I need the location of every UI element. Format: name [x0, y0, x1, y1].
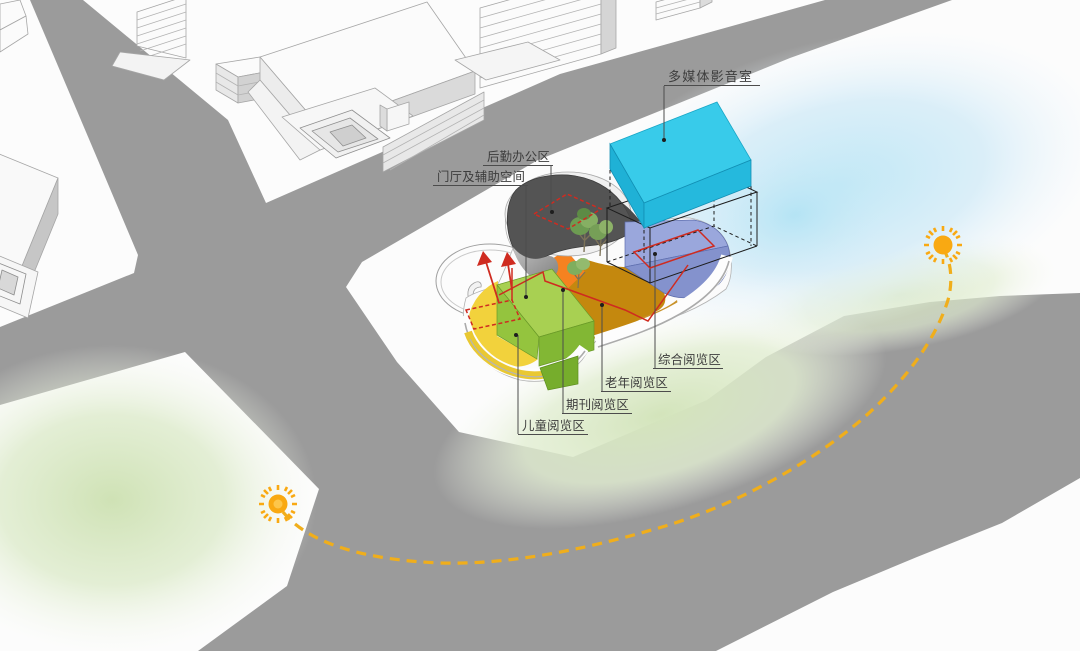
svg-text:多媒体影音室: 多媒体影音室: [668, 69, 753, 84]
svg-text:门厅及辅助空间: 门厅及辅助空间: [437, 169, 525, 184]
svg-text:期刊阅览区: 期刊阅览区: [566, 397, 629, 412]
svg-text:综合阅览区: 综合阅览区: [658, 352, 721, 367]
svg-text:儿童阅览区: 儿童阅览区: [522, 418, 585, 433]
svg-text:老年阅览区: 老年阅览区: [605, 375, 668, 390]
svg-text:后勤办公区: 后勤办公区: [487, 149, 550, 164]
